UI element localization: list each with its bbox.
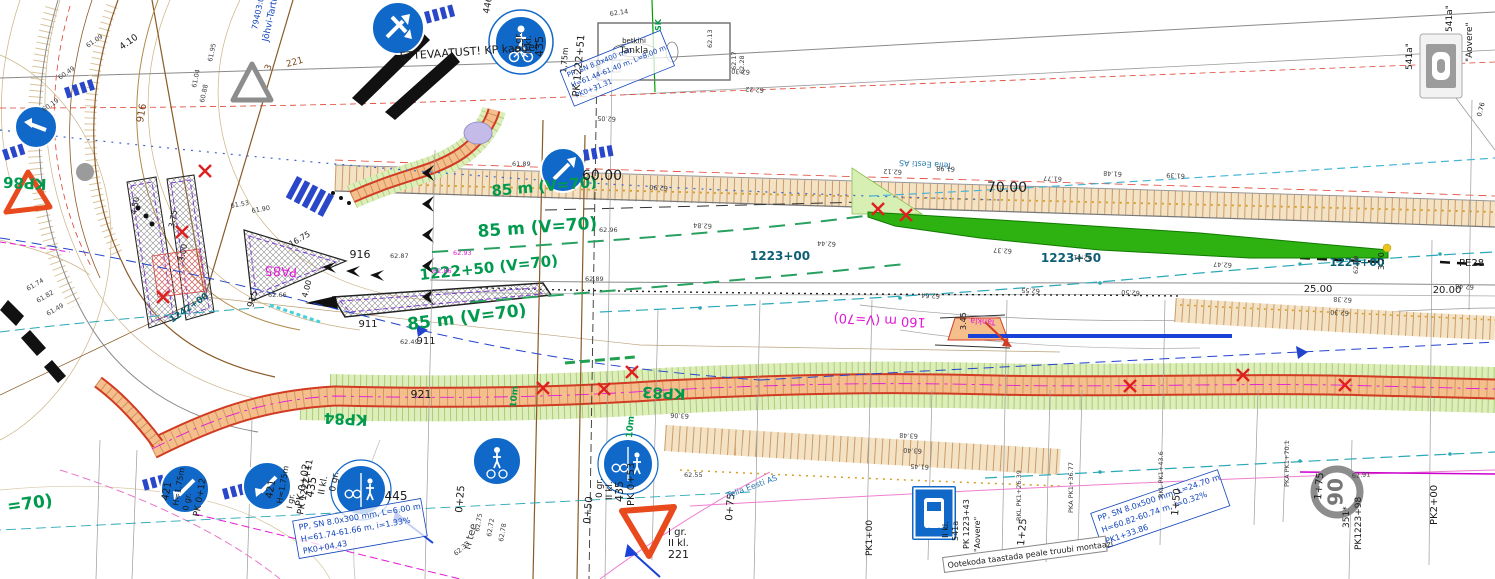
sign-label: 541a" [1405, 43, 1415, 70]
elevation-label: 62.44 [817, 239, 836, 248]
elevation-label: 62.13 [706, 29, 714, 48]
elevation-label: 61.53 [230, 199, 250, 210]
elevation-label: 61.89 [512, 160, 531, 168]
flow-arrows [394, 512, 660, 577]
alignment-code: 915 [246, 290, 260, 309]
sign-label: 435 [613, 481, 626, 502]
elevation-label: 60.88 [198, 84, 210, 104]
elevation-label: 61.39 [1166, 171, 1185, 180]
elevation-label: 62.46 [1455, 282, 1474, 291]
chainage-label: 1+25 [1016, 518, 1029, 546]
elevation-label: 62.22 [745, 85, 764, 94]
chainage-label: PK2+00 [1429, 485, 1440, 525]
km-post-label: KP83 [642, 383, 686, 403]
dimension-label: 4.00 [300, 279, 313, 299]
elevation-label: 61.98 [936, 164, 955, 173]
elevation-label: 62.90 [649, 183, 668, 192]
elevation-label: 62.55 [1021, 286, 1040, 295]
dimension-label: 4.10 [118, 33, 140, 53]
elevation-label: 62.12 [883, 167, 902, 176]
elevation-label: 62.72 [485, 518, 496, 538]
elevation-label: 61.95 [206, 43, 218, 63]
section-marker-label: RKL PK1+43.6 [1157, 451, 1165, 498]
elevation-label: 62.49 [1352, 255, 1360, 274]
elevation-label: 62.55 [684, 471, 703, 479]
chainage-label: PK1+00 [865, 520, 875, 556]
elevation-label: 62.96 [599, 226, 618, 234]
section-marker-label: PKA PK1+36.77 [1067, 462, 1075, 513]
chainage-label: 0+25 [454, 485, 467, 513]
road-design-plan: 90 PP, SN 8.0x400 mm H=61.44-61.40 m, L=… [0, 0, 1495, 579]
sign-leader [1456, 98, 1495, 150]
sign-label: 351* [1342, 506, 1352, 528]
sign-label: 541a" [1445, 5, 1455, 32]
elevation-label: 62.30 [1330, 308, 1349, 317]
dimension-label: 3.45 [959, 312, 968, 330]
speed-label: =70) [6, 491, 54, 517]
building-label: Tankla [970, 316, 997, 326]
utility-owner-label: Telia Eesti AS [725, 473, 779, 500]
sign-label: PK 1223+43 [962, 499, 971, 549]
sk-label: SK [654, 18, 663, 31]
sign-label: 541a [951, 521, 960, 541]
sign-label: II kl. [941, 521, 950, 538]
sign-label: 221 [668, 548, 689, 561]
elevation-label: 62.05 [597, 114, 616, 123]
sign-label: I gr. [668, 527, 687, 538]
elevation-label: 61.04 [190, 69, 202, 89]
elevation-label: 62.64 [921, 291, 940, 300]
existing-post [76, 163, 94, 181]
elevation-label: 62.47 [1213, 260, 1232, 269]
sign-arrow-left [15, 106, 57, 148]
sign-bus-stop-gray [1420, 34, 1462, 98]
elevation-label: 61.48 [1103, 169, 1122, 178]
distance-label: 70.00 [987, 180, 1027, 196]
km-post-label: KP86 [3, 173, 47, 193]
elevation-label: 62.87 [390, 252, 409, 260]
sign-label: 435 [533, 36, 546, 57]
elevation-label: 62.37 [993, 246, 1012, 255]
elevation-label: 61.49 [45, 301, 65, 317]
elevation-label: 62.91 [1351, 470, 1370, 480]
alignment-code: 221 [285, 56, 304, 70]
elevation-label: 61.82 [35, 288, 55, 304]
elevation-label: 62.89 [585, 275, 604, 283]
sign-mandatory-double-arrow [372, 2, 424, 54]
sign-label: PK1223+98 [1354, 496, 1364, 550]
elevation-label: 61.90 [251, 204, 271, 215]
sign-label: 0 gr. [595, 478, 605, 498]
sign-split-ped-bike-2 [473, 437, 521, 485]
elevation-label: 62.75 [473, 513, 484, 533]
alignment-code: 916 [350, 248, 371, 261]
dimension-label: 10m [509, 386, 521, 409]
building-label: Tankla [619, 46, 648, 56]
dimension-label: 10m [625, 416, 637, 439]
sign-label: "Aovere" [1465, 22, 1475, 62]
dimension-label: 0.76 [1475, 101, 1486, 117]
section-marker-label: PKA PK1+70.1 [1283, 440, 1291, 487]
elevation-label: 62.86 [433, 267, 452, 275]
elevation-label: 62.14 [609, 7, 629, 18]
sign-label: 445 [385, 489, 408, 503]
elevation-label: 62.49 [400, 338, 419, 346]
elevation-label: 62.78 [497, 523, 508, 543]
sign-label: "Aovere" [973, 517, 982, 552]
distance-label: 25.00 [1304, 284, 1333, 295]
speed-label: 160 m (V=70) [833, 310, 926, 330]
elevation-label: 62.93 [453, 249, 472, 257]
elevation-label: 62.30 [731, 67, 750, 76]
dimension-label: 16.75 [288, 229, 312, 248]
elevation-label: 62.41 [1073, 253, 1092, 262]
elevation-label: 63.40 [903, 446, 922, 455]
elevation-label: 62.84 [693, 221, 712, 230]
chainage-label: 0+50 [582, 496, 595, 524]
station-label: PE28 [1459, 258, 1484, 269]
sign-label: 0 gr. [514, 32, 524, 52]
km-post-label: KP84 [324, 409, 368, 429]
elevation-label: 61.74 [25, 276, 45, 292]
building-label: betkini [622, 37, 646, 45]
distance-label: 60.00 [582, 168, 622, 184]
elevation-label: 61.45 [910, 462, 929, 471]
station-label: 1223+00 [750, 249, 810, 263]
yellow-marker [1383, 244, 1391, 252]
alignment-code: 916 [135, 103, 149, 124]
km-post-label: PA85 [264, 262, 297, 279]
elevation-label: 62.38 [1333, 295, 1352, 304]
elevation-label: 61.77 [1043, 174, 1062, 183]
dimension-label: 3.70 [1377, 252, 1386, 270]
speed-90-label: 90 [1324, 478, 1348, 506]
alignment-code: 911 [416, 336, 435, 347]
alignment-code: 921 [411, 388, 432, 401]
alignment-code: 446 [482, 0, 495, 15]
elevation-label: 62.66 [268, 291, 287, 299]
elevation-label: 63.06 [670, 411, 689, 420]
elevation-label: 62.50 [1121, 288, 1140, 297]
section-marker-label: RKL PK1+26.39 [1015, 470, 1023, 521]
alignment-code: 911 [358, 319, 377, 330]
elevation-label: 63.48 [899, 431, 918, 440]
platform-area [464, 122, 492, 144]
speed-label: 85 m (V=70) [477, 214, 598, 242]
sign-label: PK 0+53 [626, 463, 637, 506]
